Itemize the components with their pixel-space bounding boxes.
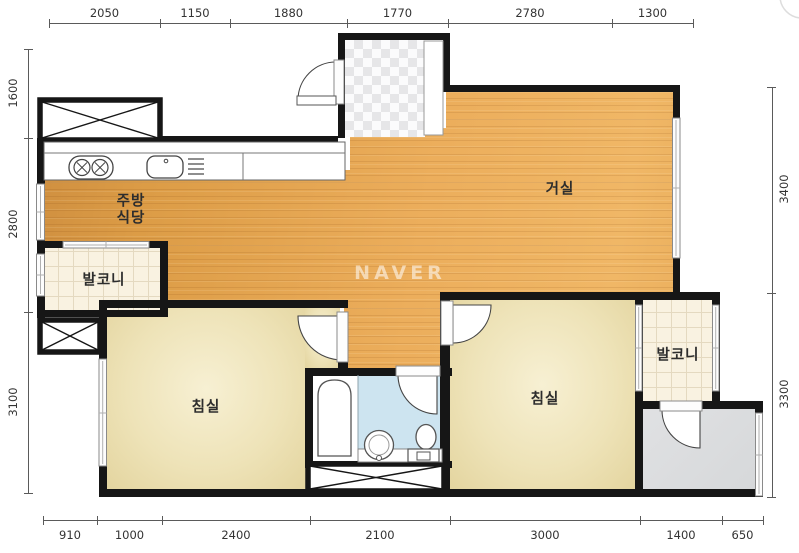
wall-corridor-bedroom-right (440, 292, 450, 490)
wall-bedroom-left-left (99, 300, 107, 497)
dim-tick-bottom-7 (763, 516, 764, 525)
wall-bathroom-left (305, 368, 313, 468)
dim-label-top-1880: 1880 (264, 6, 314, 20)
wall-left-outer (37, 138, 45, 318)
dim-label-left-3100: 3100 (6, 377, 20, 427)
dim-tick-bottom-3 (310, 516, 311, 525)
dim-label-top-1300: 1300 (628, 6, 678, 20)
dim-label-bottom-1400: 1400 (656, 528, 706, 542)
dim-tick-top-0 (49, 19, 50, 28)
dim-tick-top-5 (612, 19, 613, 28)
dim-tick-right-1 (767, 293, 776, 294)
bathroom-tub-zone-floor (311, 374, 359, 463)
dim-line-top (49, 23, 693, 24)
dim-tick-left-1 (24, 138, 33, 139)
wall-bathroom-bottom (305, 461, 452, 468)
wall-balcony-right-right (712, 292, 720, 409)
dim-label-right-3400: 3400 (777, 164, 791, 214)
bedroom-left-label: 침실 (192, 400, 221, 417)
bedroom-left-floor (105, 306, 307, 491)
dim-tick-bottom-5 (640, 516, 641, 525)
dim-tick-bottom-2 (162, 516, 163, 525)
living-room-label: 거실 (546, 182, 575, 199)
storage-x-box-left (40, 320, 100, 352)
dim-tick-top-3 (347, 19, 348, 28)
entrance-door-leaf (297, 96, 336, 105)
dim-label-top-2050: 2050 (80, 6, 130, 20)
dim-tick-top-1 (160, 19, 161, 28)
balcony-right-label: 발코니 (656, 348, 699, 365)
wall-bedroom-left-door-stub (338, 356, 348, 372)
dim-tick-bottom-6 (722, 516, 723, 525)
dim-label-bottom-650: 650 (718, 528, 768, 542)
dim-tick-right-2 (767, 497, 776, 498)
wall-balcony-left-top (37, 241, 168, 248)
dim-label-top-1770: 1770 (373, 6, 423, 20)
kitchen-dining-label: 주방 식당 (117, 193, 146, 226)
dim-tick-top-4 (448, 19, 449, 28)
dim-tick-left-2 (24, 312, 33, 313)
wall-utility-right (755, 401, 763, 497)
closet-x-box-top-left (40, 100, 160, 140)
wall-living-top (443, 85, 680, 92)
dim-label-bottom-910: 910 (45, 528, 95, 542)
wall-entrance-top (338, 33, 450, 40)
dim-tick-bottom-4 (450, 516, 451, 525)
storage-x-box-center (308, 464, 444, 491)
wall-living-right (673, 85, 680, 299)
dim-line-bottom (43, 520, 763, 521)
dim-label-bottom-3000: 3000 (520, 528, 570, 542)
dim-tick-bottom-0 (43, 516, 44, 525)
dim-line-left (28, 49, 29, 493)
balcony-left-label: 발코니 (82, 273, 125, 290)
entrance-door-swing (298, 62, 336, 100)
dim-tick-right-0 (767, 87, 776, 88)
bathroom-tile-floor (358, 374, 442, 463)
dim-label-bottom-2100: 2100 (355, 528, 405, 542)
shoe-cabinet (424, 41, 443, 135)
bedroom-left-door-nook-floor (305, 306, 340, 368)
dim-tick-top-2 (230, 19, 231, 28)
dim-tick-left-3 (24, 493, 33, 494)
bedroom-right-label: 침실 (531, 392, 560, 409)
dim-label-top-1150: 1150 (170, 6, 220, 20)
wall-bedroom-left-top (99, 300, 348, 308)
dim-tick-bottom-1 (97, 516, 98, 525)
wall-entrance-left (338, 33, 345, 138)
wall-bottom-outer (99, 489, 763, 497)
wall-bathroom-top (305, 368, 452, 376)
naver-watermark: NAVER (354, 262, 446, 284)
dim-label-bottom-2400: 2400 (211, 528, 261, 542)
floor-plan: NAVER (0, 0, 799, 553)
dim-tick-left-0 (24, 49, 33, 50)
dim-label-left-2800: 2800 (6, 199, 20, 249)
wall-kitchen-top (160, 136, 338, 143)
wall-utility-top (635, 401, 763, 409)
dim-label-left-1600: 1600 (6, 68, 20, 118)
dim-tick-top-6 (693, 19, 694, 28)
corner-ui-artifact (780, 0, 799, 18)
wall-bedroom-right-right (635, 292, 643, 497)
dim-line-right (772, 87, 773, 497)
dim-label-top-2780: 2780 (505, 6, 555, 20)
dim-label-bottom-1000: 1000 (105, 528, 155, 542)
entrance-floor (345, 40, 425, 137)
dim-label-right-3300: 3300 (777, 369, 791, 419)
utility-room-floor (641, 407, 757, 491)
wall-entrance-right (443, 33, 450, 92)
